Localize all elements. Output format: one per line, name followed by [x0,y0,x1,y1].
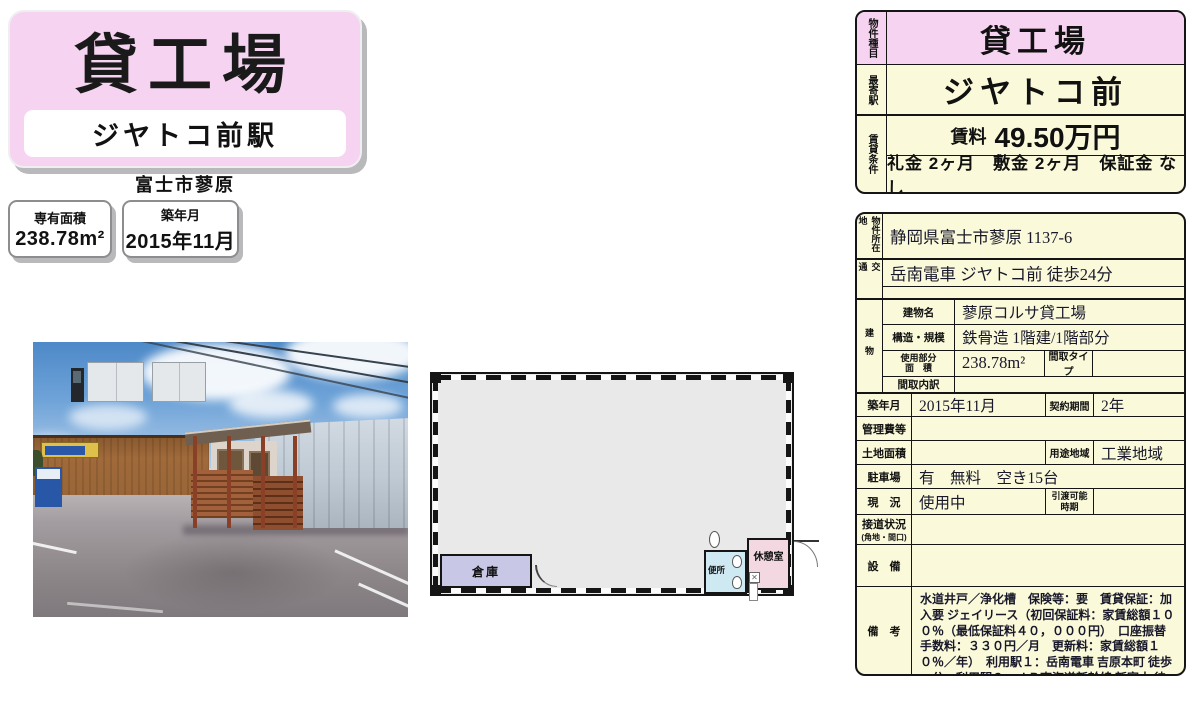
summary-fees: 礼金 2ヶ月 敷金 2ヶ月 保証金 なし [887,155,1184,192]
row-address: 物件所在地 静岡県富士市蓼原 1137-6 [857,214,1184,258]
photo-garage-door-left [87,362,144,402]
plan-warehouse-label: 倉庫 [472,563,500,580]
summary-table: 物件種目 貸工場 最寄駅 ジヤトコ前 賃貸条件 賃料 49.50万円 礼金 2ヶ… [855,10,1186,194]
address-value: 静岡県富士市蓼原 1137-6 [883,214,1184,258]
summary-station-value: ジヤトコ前 [887,64,1184,114]
rent-caption: 賃料 [950,123,986,149]
plan-counter [749,583,758,601]
plan-toilet-label: 便所 [708,564,725,576]
layout-type-label: 間取タイプ [1044,351,1093,376]
plan-wall-top [436,375,788,380]
photo-porch-post [261,436,265,528]
floor-plan: 倉庫 便所 休憩室 ✕ [430,372,794,596]
floor-area-badge-label: 専有面積 [34,208,86,227]
building-area-label-line1: 使用部分 [900,353,936,363]
floor-area-badge: 専有面積 238.78m² [8,200,112,258]
summary-terms-label: 賃貸条件 [857,114,887,192]
row-building: 建物 建物名 蓼原コルサ貸工場 構造・規模 鉄骨造 1階建/1階部分 使用部分 … [857,298,1184,392]
photo-wood-slat-fence [191,470,253,518]
plan-break-room-label: 休憩室 [749,548,788,563]
photo-entry-door [71,368,84,402]
road-label-main: 接道状況 [862,516,906,532]
contract-term-value: 2年 [1094,394,1184,416]
handover-value [1094,489,1184,514]
access-label: 交通 [857,260,883,298]
station-name: ジヤトコ前駅 [92,114,278,153]
built-date-badge-label: 築年月 [161,205,200,224]
plan-wall-left [433,378,438,590]
built-value: 2015年11月 [912,394,1045,416]
mgmt-label: 管理費等 [857,417,912,440]
building-layout-row: 間取内訳 [883,376,1184,393]
floor-area-badge-value: 238.78m² [15,228,105,251]
layout-detail-value [955,377,1184,393]
photo-factory-sign [41,442,99,458]
row-land: 土地面積 用途地域 工業地域 [857,440,1184,464]
building-area-value: 238.78m² [955,351,1044,376]
plan-warehouse-room: 倉庫 [440,554,532,588]
road-value [912,515,1184,544]
row-status: 現 況 使用中 引渡可能 時期 [857,488,1184,514]
plan-door-arc [535,565,557,587]
summary-type-label: 物件種目 [857,12,887,64]
parking-label: 駐車場 [857,465,912,488]
land-area-value [912,441,1045,464]
building-name-value: 蓼原コルサ貸工場 [955,300,1184,324]
building-structure-label: 構造・規模 [883,325,955,349]
handover-label: 引渡可能 時期 [1045,489,1094,514]
photo-porch-post [193,436,197,528]
row-remarks: 備 考 水道井戸／浄化槽 保険等：要 賃貸保証：加入要 ジェイリース（初回保証料… [857,586,1184,674]
layout-detail-label: 間取内訳 [883,377,955,393]
building-area-label-line2: 面 積 [905,363,932,373]
access-line1: 岳南電車 ジヤトコ前 徒歩24分 [883,260,1184,287]
zoning-value: 工業地域 [1094,441,1184,464]
plan-toilet-room: 便所 [704,550,747,594]
photo-porch-post [227,436,231,528]
summary-type-value: 貸工場 [887,12,1184,64]
plan-toilet-fixture [732,576,742,589]
plan-break-room: 休憩室 ✕ [747,538,790,590]
building-area-row: 使用部分 面 積 238.78m² 間取タイプ [883,350,1184,376]
title-box: 貸工場 ジヤトコ前駅 [8,10,362,168]
building-structure-value: 鉄骨造 1階建/1階部分 [955,325,1184,349]
plan-toilet-fixture [732,555,742,568]
city-area-label: 富士市蓼原 [8,171,362,197]
page-title: 貸工場 [10,14,360,106]
status-value: 使用中 [912,489,1045,514]
row-parking: 駐車場 有 無料 空き15台 [857,464,1184,488]
road-label: 接道状況 (角地・間口) [857,515,912,544]
photo-factory-sign-text [45,446,85,455]
building-name-row: 建物名 蓼原コルサ貸工場 [883,300,1184,324]
row-road: 接道状況 (角地・間口) [857,514,1184,544]
row-mgmt: 管理費等 [857,416,1184,440]
photo-cloud [333,394,403,418]
building-name-label: 建物名 [883,300,955,324]
building-structure-row: 構造・規模 鉄骨造 1階建/1階部分 [883,324,1184,349]
building-label: 建物 [857,300,883,392]
row-equipment: 設 備 [857,544,1184,586]
photo-cloud [69,404,147,430]
land-area-label: 土地面積 [857,441,912,464]
row-built: 築年月 2015年11月 契約期間 2年 [857,392,1184,416]
plan-entry-door-arc [794,541,818,567]
property-photo [33,342,408,617]
plan-wall-corner [783,374,792,383]
detail-table: 物件所在地 静岡県富士市蓼原 1137-6 交通 岳南電車 ジヤトコ前 徒歩24… [855,212,1186,676]
status-label: 現 況 [857,489,912,514]
photo-tire-marks [123,532,343,612]
row-access: 交通 岳南電車 ジヤトコ前 徒歩24分 [857,258,1184,298]
remarks-value: 水道井戸／浄化槽 保険等：要 賃貸保証：加入要 ジェイリース（初回保証料：家賃総… [912,587,1184,674]
built-date-badge: 築年月 2015年11月 [122,200,239,258]
plan-wash-basin [709,531,720,548]
mgmt-value [912,417,1184,440]
equipment-value [912,545,1184,586]
summary-station-label: 最寄駅 [857,64,887,114]
photo-vending-machine [35,467,62,507]
building-area-label: 使用部分 面 積 [883,351,955,376]
equipment-label: 設 備 [857,545,912,586]
plan-sink: ✕ [749,572,760,583]
layout-type-value [1093,351,1184,376]
road-label-sub: (角地・間口) [861,532,906,543]
photo-garage-door-right [152,362,206,402]
remarks-label: 備 考 [857,587,912,674]
parking-value: 有 無料 空き15台 [912,465,1184,488]
photo-cloud [229,390,313,418]
access-line2 [883,287,1184,298]
handover-label-line1: 引渡可能 [1051,491,1087,501]
photo-porch-post [293,436,297,528]
contract-term-label: 契約期間 [1045,394,1094,416]
flyer-root: 貸工場 ジヤトコ前駅 富士市蓼原 専有面積 238.78m² 築年月 2015年… [0,0,1198,703]
address-label: 物件所在地 [857,214,883,258]
handover-label-line2: 時期 [1060,502,1078,512]
built-label: 築年月 [857,394,912,416]
station-name-box: ジヤトコ前駅 [24,110,346,157]
built-date-badge-value: 2015年11月 [126,225,236,254]
plan-wall-corner [432,374,441,383]
zoning-label: 用途地域 [1045,441,1094,464]
